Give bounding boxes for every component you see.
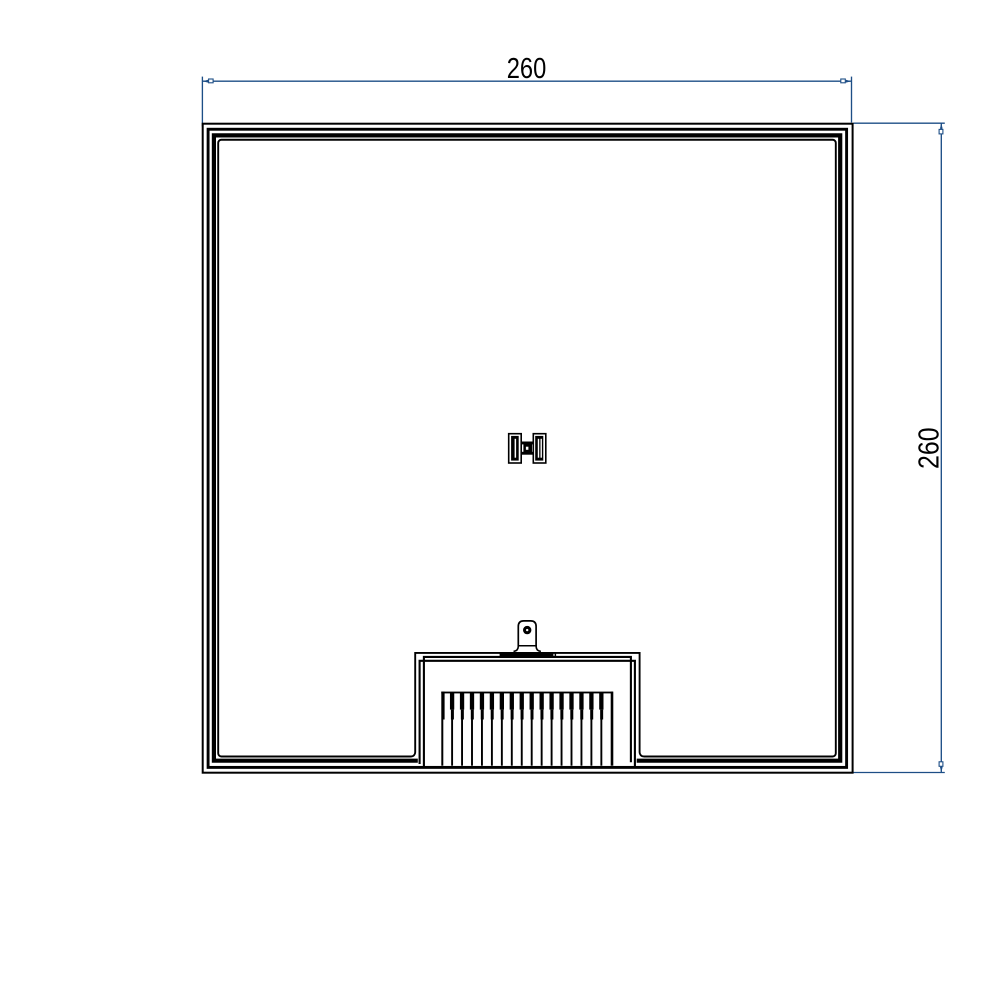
- svg-text:260: 260: [914, 427, 946, 469]
- svg-text:260: 260: [507, 53, 547, 85]
